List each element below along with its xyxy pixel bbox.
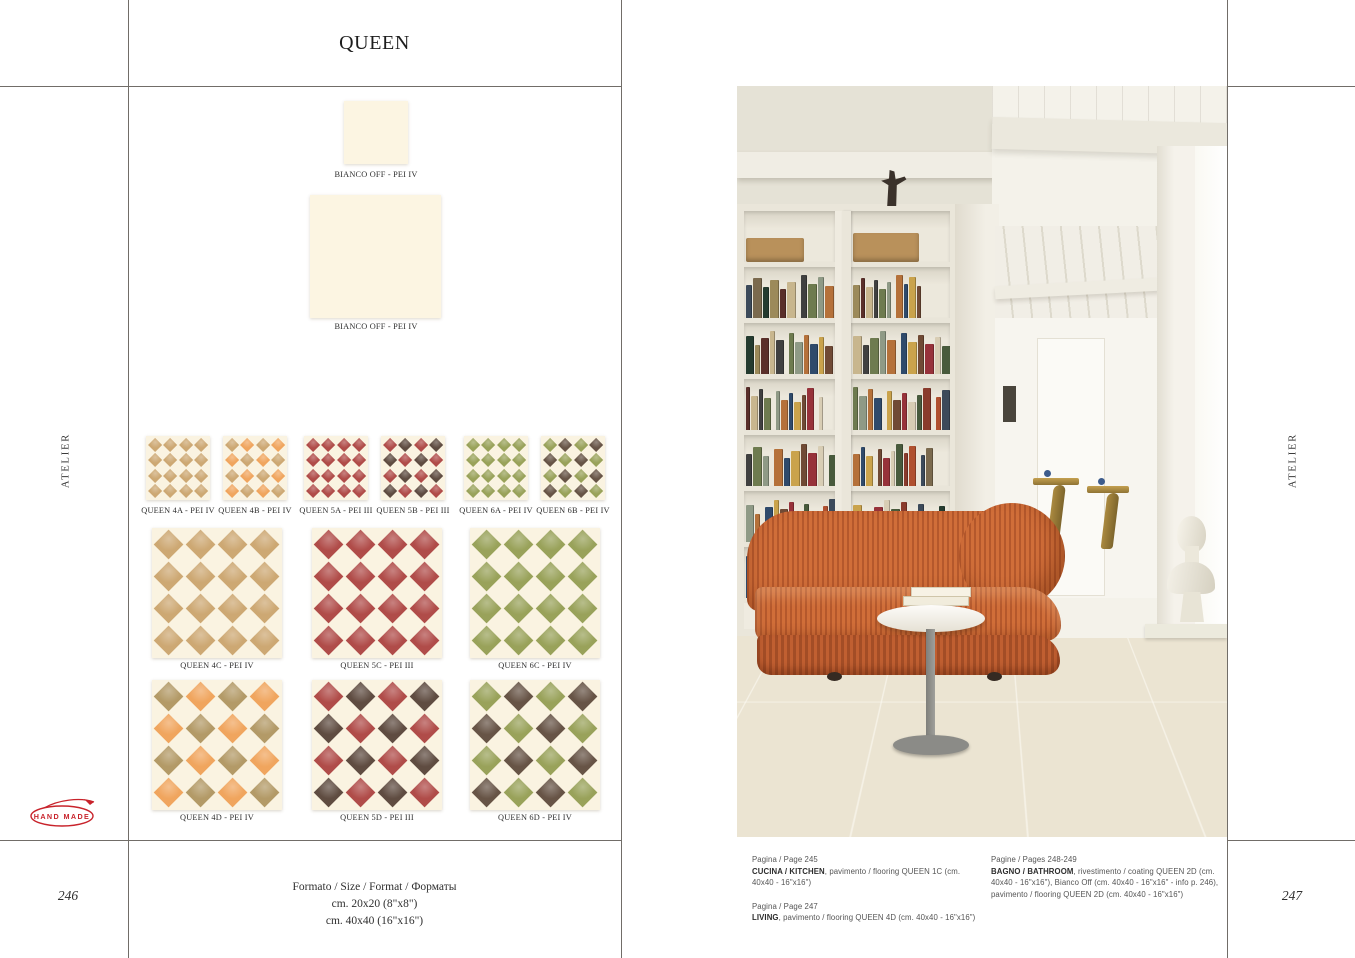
tile-cell bbox=[147, 453, 163, 469]
tile-diamond bbox=[194, 484, 208, 498]
tile-diamond bbox=[306, 453, 320, 467]
tile-cell bbox=[185, 561, 217, 593]
tile-cell bbox=[336, 468, 352, 484]
tile-cell bbox=[217, 625, 249, 657]
tile-diamond bbox=[589, 438, 603, 452]
book-spine bbox=[891, 451, 895, 486]
tile-cell bbox=[382, 437, 398, 453]
tile-diamond bbox=[568, 562, 598, 592]
tile-diamond bbox=[256, 484, 270, 498]
book-spine bbox=[917, 286, 921, 318]
tile-cell bbox=[471, 561, 503, 593]
tile-diamond bbox=[186, 562, 216, 592]
book-spine bbox=[829, 455, 835, 486]
swatch-label: BIANCO OFF - PEI IV bbox=[296, 170, 456, 179]
book-spine bbox=[791, 451, 800, 486]
tile-diamond bbox=[250, 746, 280, 776]
tile-cell bbox=[271, 468, 287, 484]
tile-diamond bbox=[194, 438, 208, 452]
tile-cell bbox=[398, 484, 414, 500]
console-top bbox=[1033, 478, 1079, 485]
book-spine bbox=[893, 400, 901, 430]
book-spine bbox=[908, 402, 916, 430]
tile-diamond bbox=[148, 469, 162, 483]
tile-cell bbox=[352, 484, 368, 500]
tile-diamond bbox=[225, 438, 239, 452]
tile-diamond bbox=[346, 626, 376, 656]
tile-cell bbox=[321, 437, 337, 453]
tile-cell bbox=[249, 561, 281, 593]
tile-cell bbox=[240, 484, 256, 500]
tile-diamond bbox=[163, 438, 177, 452]
book-spine bbox=[763, 456, 769, 486]
tile-diamond bbox=[512, 438, 526, 452]
tile-diamond bbox=[346, 682, 376, 712]
tile-cell bbox=[471, 713, 503, 745]
tile-cell bbox=[558, 468, 574, 484]
tile-cell bbox=[352, 437, 368, 453]
tile-diamond bbox=[179, 438, 193, 452]
tile-diamond bbox=[154, 682, 184, 712]
book-spine bbox=[818, 446, 824, 486]
tile-diamond bbox=[536, 778, 566, 808]
tile-cell bbox=[382, 484, 398, 500]
book-spine bbox=[868, 389, 873, 430]
handmade-logo-graphic: HAND MADE bbox=[28, 795, 106, 831]
formats-line: cm. 20x20 (8"x8") bbox=[128, 896, 621, 913]
tile-cell bbox=[217, 777, 249, 809]
tile-diamond bbox=[398, 469, 412, 483]
tile-cell bbox=[503, 745, 535, 777]
tile-diamond bbox=[410, 682, 440, 712]
tile-diamond bbox=[250, 682, 280, 712]
tile-cell bbox=[147, 437, 163, 453]
tile-cell bbox=[542, 468, 558, 484]
tile-diamond bbox=[321, 453, 335, 467]
tile-cell bbox=[471, 681, 503, 713]
tile-cell bbox=[512, 437, 528, 453]
tile-cell bbox=[271, 437, 287, 453]
tile-diamond bbox=[589, 453, 603, 467]
tile-diamond bbox=[536, 746, 566, 776]
tile-cell bbox=[382, 468, 398, 484]
tile-diamond bbox=[410, 714, 440, 744]
book-spine bbox=[751, 396, 758, 430]
tile-diamond bbox=[410, 626, 440, 656]
tile-diamond bbox=[346, 594, 376, 624]
caption-page-ref: Pagina / Page 247 bbox=[752, 901, 978, 913]
tile-cell bbox=[377, 593, 409, 625]
tile-diamond bbox=[558, 438, 572, 452]
tile-cell bbox=[240, 453, 256, 469]
book-spine bbox=[863, 345, 869, 374]
tile-queen-6a bbox=[464, 436, 528, 500]
console-vase bbox=[1098, 478, 1105, 485]
tile-cell bbox=[153, 561, 185, 593]
tile-cell bbox=[429, 468, 445, 484]
tile-diamond bbox=[568, 530, 598, 560]
tile-diamond bbox=[256, 453, 270, 467]
tile-diamond bbox=[306, 484, 320, 498]
tile-cell bbox=[413, 468, 429, 484]
tile-diamond bbox=[383, 453, 397, 467]
tile-cell bbox=[178, 484, 194, 500]
tile-diamond bbox=[568, 746, 598, 776]
tile-cell bbox=[512, 484, 528, 500]
tile-label: QUEEN 6D - PEI IV bbox=[470, 813, 600, 822]
tile-label: QUEEN 5B - PEI III bbox=[374, 506, 452, 515]
top-rule-left bbox=[0, 86, 621, 87]
tile-diamond bbox=[558, 453, 572, 467]
tile-diamond bbox=[186, 682, 216, 712]
tile-cell bbox=[178, 453, 194, 469]
tile-cell bbox=[163, 484, 179, 500]
tile-cell bbox=[573, 484, 589, 500]
tile-cell bbox=[313, 561, 345, 593]
caption-page-ref: Pagina / Page 245 bbox=[752, 854, 978, 866]
tile-label: QUEEN 4A - PEI IV bbox=[139, 506, 217, 515]
tile-diamond bbox=[346, 562, 376, 592]
tile-cell bbox=[194, 484, 210, 500]
tile-diamond bbox=[378, 746, 408, 776]
book-spine bbox=[825, 346, 833, 374]
tile-diamond bbox=[346, 530, 376, 560]
tile-diamond bbox=[314, 746, 344, 776]
tile-diamond bbox=[568, 714, 598, 744]
tile-diamond bbox=[481, 438, 495, 452]
tile-cell bbox=[465, 484, 481, 500]
tile-diamond bbox=[543, 453, 557, 467]
tile-cell bbox=[352, 453, 368, 469]
caption-block: Pagina / Page 247 LIVING, pavimento / fl… bbox=[752, 901, 978, 924]
tile-queen-5c bbox=[312, 528, 442, 658]
tile-cell bbox=[567, 713, 599, 745]
tile-cell bbox=[313, 625, 345, 657]
tile-diamond bbox=[504, 530, 534, 560]
tile-diamond bbox=[256, 469, 270, 483]
book-spine bbox=[746, 454, 752, 486]
tile-diamond bbox=[194, 453, 208, 467]
book-spine bbox=[866, 456, 873, 486]
tile-diamond bbox=[472, 626, 502, 656]
tile-cell bbox=[240, 468, 256, 484]
tile-cell bbox=[224, 453, 240, 469]
tile-diamond bbox=[504, 714, 534, 744]
book-spine bbox=[896, 444, 903, 486]
tile-diamond bbox=[346, 778, 376, 808]
tile-cell bbox=[471, 593, 503, 625]
tile-cell bbox=[409, 777, 441, 809]
photo-classical-bust bbox=[1162, 516, 1222, 626]
tile-cell bbox=[178, 437, 194, 453]
tile-cell bbox=[558, 453, 574, 469]
tile-diamond bbox=[314, 714, 344, 744]
tile-cell bbox=[147, 484, 163, 500]
tile-diamond bbox=[568, 682, 598, 712]
tile-diamond bbox=[337, 484, 351, 498]
book-spine bbox=[866, 287, 873, 318]
tile-diamond bbox=[314, 682, 344, 712]
table-top bbox=[877, 605, 985, 632]
tile-diamond bbox=[536, 562, 566, 592]
tile-cell bbox=[153, 625, 185, 657]
tile-queen-5d bbox=[312, 680, 442, 810]
handmade-logo-text: HAND MADE bbox=[34, 812, 91, 821]
tile-cell bbox=[481, 437, 497, 453]
tile-diamond bbox=[352, 484, 366, 498]
tile-cell bbox=[217, 713, 249, 745]
book-spine bbox=[887, 282, 891, 318]
formats-block: Formato / Size / Format / Форматы cm. 20… bbox=[128, 879, 621, 930]
tile-cell bbox=[567, 681, 599, 713]
book-spine bbox=[923, 388, 931, 430]
table-base bbox=[893, 735, 969, 755]
tile-cell bbox=[217, 561, 249, 593]
tile-cell bbox=[313, 529, 345, 561]
tile-diamond bbox=[574, 453, 588, 467]
tile-cell bbox=[185, 777, 217, 809]
bust-chest bbox=[1167, 562, 1215, 594]
tile-cell bbox=[398, 453, 414, 469]
book-spine bbox=[808, 453, 817, 486]
tile-diamond bbox=[410, 746, 440, 776]
tile-label: QUEEN 6B - PEI IV bbox=[534, 506, 612, 515]
book-spine bbox=[784, 458, 790, 486]
tile-diamond bbox=[568, 626, 598, 656]
bookshelf-row bbox=[744, 379, 835, 435]
tile-cell bbox=[481, 484, 497, 500]
book-spine bbox=[936, 397, 941, 430]
bust-plinth bbox=[1179, 592, 1205, 622]
tile-diamond bbox=[589, 469, 603, 483]
book-spine bbox=[776, 340, 784, 374]
tile-diamond bbox=[414, 469, 428, 483]
tile-diamond bbox=[250, 530, 280, 560]
book-spine bbox=[789, 393, 793, 430]
tile-cell bbox=[471, 745, 503, 777]
tile-diamond bbox=[314, 562, 344, 592]
tile-cell bbox=[535, 561, 567, 593]
tile-diamond bbox=[378, 714, 408, 744]
tile-diamond bbox=[536, 714, 566, 744]
tile-diamond bbox=[240, 453, 254, 467]
tile-cell bbox=[313, 713, 345, 745]
tile-diamond bbox=[414, 484, 428, 498]
tile-diamond bbox=[497, 484, 511, 498]
tile-cell bbox=[217, 681, 249, 713]
tile-queen-4c bbox=[152, 528, 282, 658]
tile-diamond bbox=[218, 594, 248, 624]
book-spine bbox=[874, 398, 882, 430]
book-spine bbox=[759, 389, 763, 430]
tile-diamond bbox=[321, 438, 335, 452]
tile-diamond bbox=[472, 562, 502, 592]
tile-diamond bbox=[250, 778, 280, 808]
tile-cell bbox=[535, 777, 567, 809]
tile-cell bbox=[409, 561, 441, 593]
book-spine bbox=[755, 345, 760, 374]
tile-diamond bbox=[429, 453, 443, 467]
tile-cell bbox=[224, 484, 240, 500]
book-spine bbox=[774, 449, 783, 486]
tile-cell bbox=[313, 745, 345, 777]
table-stem bbox=[926, 629, 935, 741]
tile-diamond bbox=[472, 530, 502, 560]
tile-diamond bbox=[240, 438, 254, 452]
book-spine bbox=[781, 400, 788, 430]
tile-diamond bbox=[250, 626, 280, 656]
tile-diamond bbox=[497, 453, 511, 467]
console-leg bbox=[1101, 493, 1120, 549]
tile-diamond bbox=[154, 778, 184, 808]
tile-diamond bbox=[163, 469, 177, 483]
tile-diamond bbox=[466, 438, 480, 452]
tile-diamond bbox=[414, 453, 428, 467]
handmade-logo: HAND MADE bbox=[28, 795, 106, 831]
tile-label: QUEEN 5A - PEI III bbox=[297, 506, 375, 515]
book-spine bbox=[794, 402, 801, 430]
book-spine bbox=[853, 285, 860, 318]
room-photo bbox=[737, 86, 1227, 837]
tile-diamond bbox=[466, 453, 480, 467]
tile-cell bbox=[185, 593, 217, 625]
tile-cell bbox=[377, 745, 409, 777]
book-spine bbox=[870, 338, 879, 374]
tile-diamond bbox=[250, 714, 280, 744]
formats-heading: Formato / Size / Format / Форматы bbox=[128, 879, 621, 896]
tile-cell bbox=[249, 681, 281, 713]
bookshelf-row bbox=[851, 435, 950, 491]
book-spine bbox=[787, 282, 796, 318]
tile-cell bbox=[542, 453, 558, 469]
caption-column-right: Pagine / Pages 248-249 BAGNO / BATHROOM,… bbox=[991, 854, 1219, 912]
tile-cell bbox=[503, 593, 535, 625]
tile-diamond bbox=[314, 594, 344, 624]
tile-cell bbox=[305, 437, 321, 453]
tile-diamond bbox=[536, 626, 566, 656]
tile-diamond bbox=[352, 453, 366, 467]
tile-cell bbox=[153, 777, 185, 809]
tile-diamond bbox=[154, 626, 184, 656]
book-spine bbox=[896, 275, 903, 318]
tile-diamond bbox=[352, 438, 366, 452]
book-spine bbox=[763, 287, 769, 318]
photo-console-table bbox=[1087, 486, 1129, 556]
sofa-foot bbox=[987, 672, 1002, 681]
tile-diamond bbox=[429, 469, 443, 483]
tile-diamond bbox=[398, 484, 412, 498]
tile-diamond bbox=[218, 714, 248, 744]
tile-cell bbox=[409, 625, 441, 657]
book-spine bbox=[746, 285, 752, 318]
tile-cell bbox=[413, 437, 429, 453]
tile-diamond bbox=[321, 469, 335, 483]
tile-cell bbox=[496, 484, 512, 500]
book-spine bbox=[917, 395, 922, 430]
tile-cell bbox=[377, 561, 409, 593]
tile-cell bbox=[465, 453, 481, 469]
tile-diamond bbox=[378, 562, 408, 592]
tile-cell bbox=[589, 437, 605, 453]
tile-cell bbox=[345, 777, 377, 809]
tile-label: QUEEN 6C - PEI IV bbox=[470, 661, 600, 670]
tile-cell bbox=[535, 713, 567, 745]
book-spine bbox=[935, 337, 941, 374]
tile-diamond bbox=[225, 453, 239, 467]
bookshelf-row bbox=[851, 211, 950, 267]
tile-cell bbox=[465, 468, 481, 484]
tile-diamond bbox=[154, 594, 184, 624]
tile-diamond bbox=[466, 484, 480, 498]
tile-cell bbox=[271, 453, 287, 469]
tile-diamond bbox=[429, 484, 443, 498]
bookshelf-row bbox=[744, 267, 835, 323]
book-spine bbox=[853, 336, 862, 374]
page-number-left: 246 bbox=[40, 888, 96, 904]
photo-side-table bbox=[877, 601, 987, 761]
tile-cell bbox=[496, 468, 512, 484]
tile-cell bbox=[558, 484, 574, 500]
tile-cell bbox=[429, 453, 445, 469]
tile-diamond bbox=[314, 626, 344, 656]
tile-cell bbox=[503, 713, 535, 745]
tile-diamond bbox=[472, 778, 502, 808]
tile-diamond bbox=[410, 562, 440, 592]
tile-diamond bbox=[337, 438, 351, 452]
tile-cell bbox=[589, 453, 605, 469]
tile-cell bbox=[377, 625, 409, 657]
tile-cell bbox=[345, 681, 377, 713]
console-top bbox=[1087, 486, 1129, 493]
book-spine bbox=[853, 454, 860, 486]
book-spine bbox=[878, 449, 882, 486]
tile-diamond bbox=[558, 484, 572, 498]
tile-cell bbox=[345, 625, 377, 657]
tile-diamond bbox=[218, 530, 248, 560]
tile-cell bbox=[413, 453, 429, 469]
tile-cell bbox=[194, 468, 210, 484]
caption-column-left: Pagina / Page 245 CUCINA / KITCHEN, pavi… bbox=[752, 854, 978, 936]
book-spine bbox=[810, 344, 818, 374]
tile-diamond bbox=[378, 530, 408, 560]
tile-diamond bbox=[574, 438, 588, 452]
tile-diamond bbox=[504, 594, 534, 624]
tile-diamond bbox=[383, 469, 397, 483]
tile-cell bbox=[481, 453, 497, 469]
caption-room: LIVING bbox=[752, 913, 779, 922]
tile-label: QUEEN 5C - PEI III bbox=[312, 661, 442, 670]
tile-cell bbox=[224, 437, 240, 453]
tile-label: QUEEN 4C - PEI IV bbox=[152, 661, 282, 670]
book-spine bbox=[902, 393, 907, 430]
book-spine bbox=[874, 280, 878, 318]
book-spine bbox=[853, 387, 858, 430]
book-spine bbox=[921, 455, 925, 486]
tile-cell bbox=[313, 777, 345, 809]
tile-cell bbox=[377, 777, 409, 809]
swatch-bianco-off-large bbox=[310, 195, 441, 318]
tile-cell bbox=[567, 745, 599, 777]
tile-diamond bbox=[154, 714, 184, 744]
tile-diamond bbox=[186, 530, 216, 560]
book-spine bbox=[789, 333, 794, 374]
book-spine bbox=[861, 447, 865, 486]
tile-cell bbox=[535, 529, 567, 561]
tile-diamond bbox=[378, 682, 408, 712]
caption-text: BAGNO / BATHROOM, rivestimento / coating… bbox=[991, 866, 1219, 901]
tile-cell bbox=[352, 468, 368, 484]
tile-cell bbox=[409, 529, 441, 561]
